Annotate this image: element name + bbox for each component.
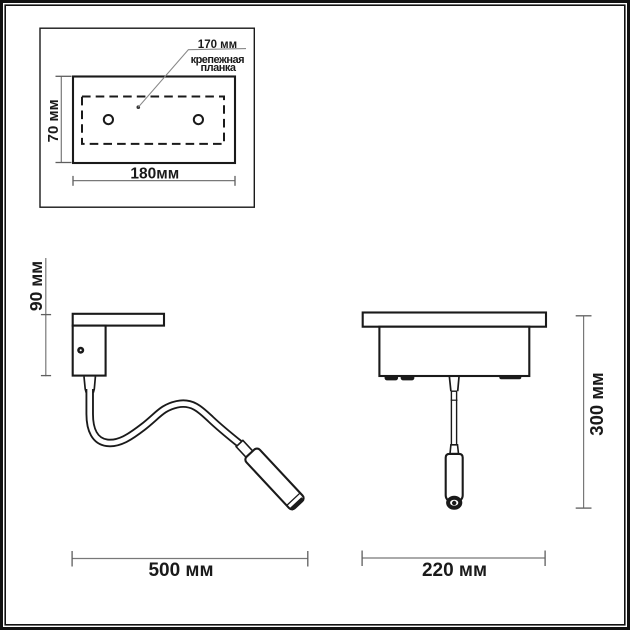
svg-text:220 мм: 220 мм [422,560,487,581]
svg-text:70 мм: 70 мм [45,99,62,142]
svg-text:300 мм: 300 мм [586,372,607,435]
svg-text:90 мм: 90 мм [26,261,46,311]
svg-text:170 мм: 170 мм [198,39,237,51]
svg-text:планка: планка [200,62,236,74]
svg-text:180мм: 180мм [130,166,179,183]
svg-text:500 мм: 500 мм [148,560,213,581]
